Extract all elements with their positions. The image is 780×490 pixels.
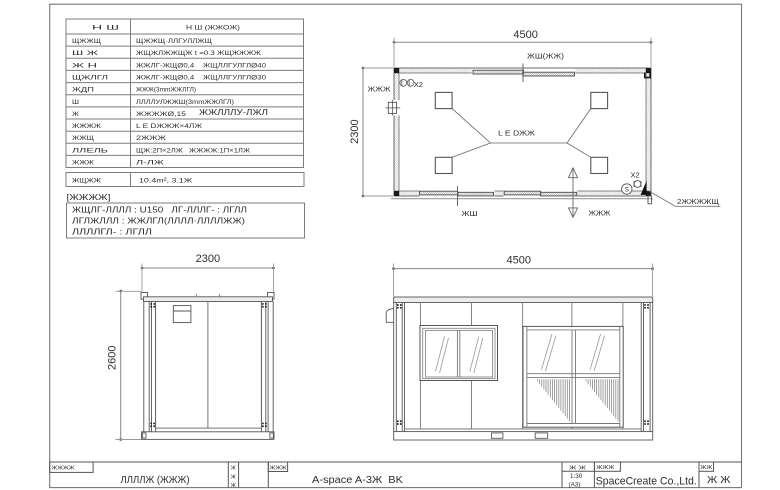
svg-text:L E DЖЖЖ×4ЛЖ: L E DЖЖЖ×4ЛЖ	[136, 123, 203, 130]
svg-text:ЩЖЖЩ: ЩЖЖЩ	[72, 38, 102, 45]
svg-text:Ш: Ш	[72, 99, 79, 106]
svg-text:2600: 2600	[107, 346, 119, 370]
svg-text:ЩЖ:2П×2ЛЖ ЖЖЖЖ:1П×1ЛЖ: ЩЖ:2П×2ЛЖ ЖЖЖЖ:1П×1ЛЖ	[136, 147, 251, 154]
svg-text:Ж Н: Ж Н	[72, 62, 97, 69]
svg-text:Ж: Ж	[231, 475, 236, 481]
svg-text:ЖЖЖ: ЖЖЖ	[596, 465, 615, 471]
svg-text:Ж: Ж	[72, 111, 80, 118]
svg-text:Ж: Ж	[231, 483, 236, 489]
svg-text:Н Ш: Н Ш	[92, 25, 119, 32]
svg-text:2ЖЖЖЖЩ: 2ЖЖЖЖЩ	[677, 197, 719, 206]
svg-text:2ЖЖЖ: 2ЖЖЖ	[136, 135, 167, 142]
svg-text:ЛЛЕЛЬ: ЛЛЕЛЬ	[72, 147, 109, 154]
svg-text:Ж Ж: Ж Ж	[569, 465, 587, 471]
svg-text:ЖЖЛЛЛУ-ЛЖЛ: ЖЖЛЛЛУ-ЛЖЛ	[199, 108, 268, 117]
svg-text:ЖЖЖ(3mmЖЖЛГЛ): ЖЖЖ(3mmЖЖЛГЛ)	[136, 87, 196, 94]
svg-text:1:30: 1:30	[570, 473, 583, 480]
svg-text:ЛГЛЖЛЛЛ : ЖЖЛГЛ(ЛЛЛЛ·ЛЛЛЛЖЖ): ЛГЛЖЛЛЛ : ЖЖЛГЛ(ЛЛЛЛ·ЛЛЛЛЖЖ)	[72, 217, 245, 226]
svg-text:X2: X2	[631, 170, 640, 179]
svg-text:ЖЩЖЖ: ЖЩЖЖ	[72, 178, 102, 185]
svg-text:4500: 4500	[507, 255, 531, 267]
svg-text:ЖЖЩ: ЖЖЩ	[72, 135, 95, 142]
svg-text:L E DЖЖ: L E DЖЖ	[498, 128, 535, 137]
svg-text:ЛЛЛЛЖ (ЖЖЖ): ЛЛЛЛЖ (ЖЖЖ)	[121, 475, 190, 486]
svg-text:ЖЖЖ: ЖЖЖ	[72, 160, 95, 167]
svg-text:4500: 4500	[513, 29, 537, 41]
svg-text:S: S	[625, 187, 630, 194]
svg-text:ЖЖЛГ-ЖЩØ0,4 ЖЩЛЛГУЛГЛØ40: ЖЖЛГ-ЖЩØ0,4 ЖЩЛЛГУЛГЛØ40	[136, 62, 266, 69]
svg-text:A-space A-3Ж BK: A-space A-3Ж BK	[312, 474, 403, 486]
svg-text:ЖЖЖЖ: ЖЖЖЖ	[52, 466, 76, 472]
svg-text:ЖЖ: ЖЖ	[700, 465, 713, 471]
svg-text:ЩЖЛГЛ: ЩЖЛГЛ	[72, 75, 108, 82]
svg-text:10.4m², 3.1Ж: 10.4m², 3.1Ж	[139, 178, 193, 185]
svg-text:ЖШ: ЖШ	[462, 209, 478, 218]
svg-text:ЖЖЖ: ЖЖЖ	[368, 85, 391, 94]
svg-text:ЖДП: ЖДП	[72, 87, 94, 94]
svg-text:[ЖЖЖЖ]: [ЖЖЖЖ]	[67, 193, 111, 202]
svg-text:2300: 2300	[349, 119, 361, 143]
svg-text:ЛЛЛЛГЛ- : ЛГЛЛ: ЛЛЛЛГЛ- : ЛГЛЛ	[72, 228, 152, 237]
svg-text:SpaceCreate Co.,Ltd.: SpaceCreate Co.,Ltd.	[596, 476, 697, 488]
svg-text:X2: X2	[414, 80, 423, 89]
svg-text:Ш Ж: Ш Ж	[72, 50, 99, 57]
svg-text:Ж Ж: Ж Ж	[707, 474, 731, 486]
svg-text:ЖЩЛГ-ЛЛЛЛ : U150 ЛГ-ЛЛЛГ- :: ЖЩЛГ-ЛЛЛЛ : U150 ЛГ-ЛЛЛГ- : ЛГЛЛ	[72, 206, 247, 215]
svg-text:2300: 2300	[196, 253, 220, 265]
svg-text:ЖЩЖЛЖЖЩЖ t =0.3 ЖЩЖЖЖЖ: ЖЩЖЛЖЖЩЖ t =0.3 ЖЩЖЖЖЖ	[136, 50, 262, 57]
svg-text:ЖЖЖ: ЖЖЖ	[589, 209, 611, 218]
svg-text:ЖЖЖЖ: ЖЖЖЖ	[72, 123, 102, 130]
svg-text:ЛЛЛЛУЛЖЖШ(3mmЖЖЛГЛ): ЛЛЛЛУЛЖЖШ(3mmЖЖЛГЛ)	[136, 99, 234, 106]
svg-text:ЖЖЖЖØ,15: ЖЖЖЖØ,15	[136, 111, 186, 118]
svg-text:(A3): (A3)	[569, 481, 581, 488]
svg-text:Н Ш (ЖЖОЖ): Н Ш (ЖЖОЖ)	[186, 25, 240, 32]
svg-text:Ж: Ж	[231, 466, 236, 472]
svg-text:ЖЖЖ: ЖЖЖ	[270, 465, 288, 471]
svg-text:ЩЖЖЩ·ЛЛГУЛЛЖЩ: ЩЖЖЩ·ЛЛГУЛЛЖЩ	[136, 38, 213, 45]
svg-text:ЖЖЛГ-ЖЩØ0,4 ЖЩЛЛГУЛГЛØ30: ЖЖЛГ-ЖЩØ0,4 ЖЩЛЛГУЛГЛØ30	[136, 75, 266, 82]
svg-text:ЖШ(ЖЖ): ЖШ(ЖЖ)	[527, 52, 564, 61]
svg-text:Л-ЛЖ: Л-ЛЖ	[136, 160, 165, 167]
